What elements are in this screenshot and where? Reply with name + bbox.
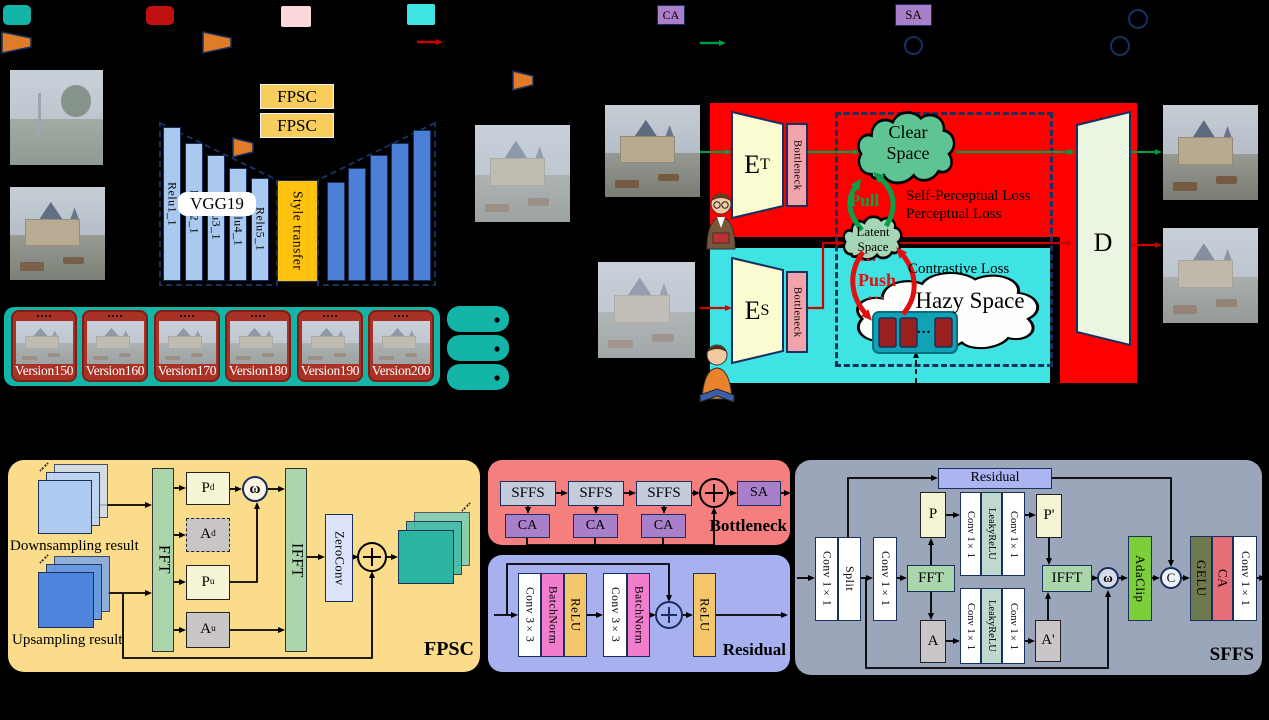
photo-haze-overlay [159,321,216,364]
relu-label: ReLU [569,598,583,632]
self-perceptual-loss-line: Self-Perceptual Loss [906,187,1051,205]
legend-red-swatch [146,6,174,25]
teacher-encoder-label: ET [737,148,777,182]
split-label: Split [843,566,856,591]
batchnorm-label: BatchNorm [546,586,558,644]
legend-sa-label: SA [905,8,922,22]
dots-mark [37,315,51,317]
hazy-space-text: Hazy Space [915,288,1024,314]
conv1x1-label: Conv 1×1 [965,511,976,558]
decoder-bar [370,155,388,281]
legend-teal-swatch [3,5,31,25]
batchnorm-box: BatchNorm [627,573,650,657]
et-sub: T [760,156,770,174]
pd-box: Pd [186,472,230,505]
legend-cyan-swatch [407,4,435,25]
style-transfer-box: Style transfer [277,180,318,282]
sffs-label: SFFS [647,486,680,502]
gelu-box: GELU [1190,536,1212,621]
legend-trapezoid-icon [2,32,31,53]
fpsc-box-bottom: FPSC [260,113,334,138]
zeroconv-box: ZeroConv [325,514,353,602]
et-main: E [744,150,760,180]
vgg19-pill: VGG19 [178,192,256,216]
photo-haze-overlay [16,321,73,364]
p-prime-label: P' [1043,508,1054,524]
concat-node: C [1160,567,1182,589]
photo-haze-overlay [230,321,287,364]
decoder-label: D [1082,226,1124,260]
sffs-ca-box: CA [1212,536,1233,621]
bottleneck-title-text: Bottleneck [710,516,787,535]
hazy-feature-cell [900,318,917,347]
a-prime-box: A' [1035,620,1061,662]
legend-circle-icon [1110,36,1130,56]
pu-main: P [202,575,210,591]
perceptual-loss-line: Perceptual Loss [906,205,1051,223]
omega-icon: ω [1103,570,1113,586]
ad-box: Ad [186,518,230,552]
version-thumb [16,321,73,364]
p-label: P [929,507,937,523]
output-feature-map [398,530,454,584]
zeroconv-label: ZeroConv [332,531,345,586]
database-icon [447,306,509,390]
dots-text: ... [917,321,931,337]
student-bottleneck-box: Bottleneck [786,271,808,353]
decoder-bar [413,130,431,281]
downsampling-label: Downsampling result [10,538,160,555]
conv3x3-box: Conv 3×3 [518,573,541,657]
pu-box: Pu [186,565,230,600]
gelu-label: GELU [1194,560,1208,597]
photo-haze-overlay [373,321,430,364]
concat-icon: C [1167,570,1176,586]
legend-circle-icon [1128,9,1148,29]
fpsc-box-top-label: FPSC [277,88,317,106]
version-card: Version160 [82,310,148,382]
conv3x3-label: Conv 3×3 [523,587,535,642]
adaclip-box: AdaClip [1128,536,1152,621]
sffs-box: SFFS [500,481,556,506]
version-label: Version150 [13,363,75,379]
conv1x1-label: Conv 1×1 [879,551,891,606]
relu-box: ReLU [564,573,587,657]
p-branch-leakyrelu: LeakyReLU [981,492,1002,576]
fpsc-box-bottom-label: FPSC [277,117,317,135]
sffs-box: SFFS [636,481,692,506]
contrastive-loss-line: Contrastive Loss [908,261,1009,277]
sffs-conv-out-box: Conv 1×1 [1233,536,1257,621]
sffs-box: SFFS [568,481,624,506]
upsampling-label: Upsampling result [12,632,162,649]
sffs-label: SFFS [511,486,544,502]
omega-node: ω [1097,567,1119,589]
version-label: Version160 [84,363,146,379]
sffs-title: SFFS [1192,644,1254,666]
dots-mark [108,315,122,317]
sffs-conv-mid-box: Conv 1×1 [873,537,897,621]
conv1x1-label: Conv 1×1 [965,603,976,650]
clear-space-label: Clear Space [864,120,952,166]
ca-box: CA [641,514,686,538]
relu-label: ReLU [698,598,712,632]
version-card: Version200 [368,310,434,382]
version-label: Version180 [227,363,289,379]
d-label: D [1094,228,1113,258]
leakyrelu-label: LeakyReLU [986,508,997,560]
sffs-label: SFFS [579,486,612,502]
version-thumb [373,321,430,364]
downsampling-text: Downsampling result [10,538,139,554]
a-box: A [920,620,946,663]
small-trapezoid-icon [513,71,533,90]
legend-ca-box: CA [657,5,685,25]
push-dots: ... [860,248,896,266]
legend-ca-label: CA [663,9,680,22]
conv3x3-box: Conv 3×3 [603,573,627,657]
version-thumb [230,321,287,364]
clear-space-line1: Clear [887,122,930,143]
leakyrelu-label: LeakyReLU [986,600,997,652]
version-thumb [159,321,216,364]
residual-title-text: Residual [723,640,786,659]
ca-label: CA [586,519,605,534]
pd-main: P [202,481,210,497]
sffs-residual-box: Residual [938,468,1052,489]
bottleneck-title: Bottleneck [695,516,787,536]
clear-space-line2: Space [887,143,930,164]
add-icon [700,479,728,507]
conv3x3-label: Conv 3×3 [609,587,621,642]
sffs-fft-box: FFT [907,565,955,592]
ad-main: A [200,527,211,543]
teacher-character [707,194,735,249]
hazy-feature-cell [879,318,896,347]
batchnorm-label: BatchNorm [632,586,644,644]
adaclip-label: AdaClip [1133,555,1147,603]
style-transfer-label: Style transfer [290,191,304,270]
pu-sub: u [210,578,215,588]
upsampling-text: Upsampling result [12,632,122,648]
fpsc-title-text: FPSC [424,638,474,660]
fft-label: FFT [918,571,944,587]
version-card: Version150 [11,310,77,382]
vgg-relu-bar: Relu3_1 [207,155,225,281]
dots-mark [251,315,265,317]
a-branch-conv: Conv 1×1 [960,588,981,664]
sffs-split-box: Split [838,537,861,621]
sffs-conv-in-box: Conv 1×1 [815,537,838,621]
version-thumb [302,321,359,364]
ca-box: CA [505,514,550,538]
legend-pink-swatch [281,6,311,27]
residual-label: Residual [971,471,1020,486]
version-label: Version170 [156,363,218,379]
residual-title: Residual [698,640,786,660]
p-branch-conv: Conv 1×1 [960,492,981,576]
pull-label: Pull [850,191,896,211]
conv1x1-label: Conv 1×1 [1008,511,1019,558]
omega-icon: ω [250,481,261,498]
legend-sa-box: SA [895,4,932,26]
version-card: Version190 [297,310,363,382]
teacher-bottleneck-label: Bottleneck [791,140,802,191]
small-trapezoid-icon [233,138,253,157]
dots-mark [180,315,194,317]
ad-sub: d [211,530,216,540]
add-icon [358,543,386,571]
ca-label: CA [654,519,673,534]
decoder-bar [348,168,366,281]
fft-label: FFT [155,545,172,574]
omega-node: ω [242,476,268,502]
photo-haze-overlay [87,321,144,364]
dots-text: ... [868,286,886,303]
student-encoder-label: ES [737,294,777,328]
version-card: Version170 [154,310,220,382]
teacher-bottleneck-box: Bottleneck [786,123,808,207]
downsample-feature-map [38,480,92,534]
perceptual-loss-text: Self-Perceptual Loss Perceptual Loss [906,187,1051,223]
a-prime-label: A' [1041,633,1055,649]
version-label: Version190 [299,363,361,379]
student-bottleneck-label: Bottleneck [791,287,802,338]
a-branch-leakyrelu: LeakyReLU [981,588,1002,664]
architecture-figure: CA SA FPSC FPSC Relu1_1 Relu2_1 Relu3_1 … [0,0,1269,720]
au-sub: u [211,625,216,635]
add-icon [656,602,682,628]
version-thumb [87,321,144,364]
au-main: A [200,622,211,638]
fpsc-fft-bar: FFT [152,468,174,652]
fpsc-box-top: FPSC [260,84,334,109]
au-box: Au [186,612,230,648]
version-label: Version200 [370,363,432,379]
es-sub: S [760,302,769,320]
ifft-label: IFFT [288,543,305,578]
upsample-feature-map [38,572,94,628]
sffs-title-text: SFFS [1210,644,1254,665]
ifft-label: IFFT [1052,571,1083,587]
p-branch-conv: Conv 1×1 [1002,492,1025,576]
vgg19-label: VGG19 [190,194,244,214]
decoder-bar [391,143,409,281]
contrastive-loss-text: Contrastive Loss [908,261,1028,278]
dots-text: ... [860,248,878,265]
p-box: P [920,492,946,538]
legend-trapezoid-icon [203,32,231,53]
sa-label: SA [750,486,768,501]
hazy-feature-dots: ... [917,321,941,338]
p-prime-box: P' [1036,494,1062,538]
pd-sub: d [210,484,215,494]
vgg-relu-bar: Relu4_1 [229,168,247,281]
legend-circle-icon [904,36,923,55]
conv1x1-label: Conv 1×1 [1008,603,1019,650]
a-label: A [928,634,939,650]
sa-box: SA [737,481,781,506]
dots-mark [323,315,337,317]
conv1x1-label: Conv 1×1 [820,551,832,606]
decoder-bar [327,182,345,281]
hazy-space-label: Hazy Space [900,287,1040,315]
dots-mark [394,315,408,317]
pull-text: Pull [850,191,879,210]
photo-haze-overlay [302,321,359,364]
fpsc-title: FPSC [398,638,474,661]
batchnorm-box: BatchNorm [541,573,564,657]
ca-label: CA [1216,569,1230,588]
version-card: Version180 [225,310,291,382]
ca-box: CA [573,514,618,538]
conv1x1-label: Conv 1×1 [1239,551,1251,606]
relu-label: Relu1_1 [166,182,179,226]
student-character [700,345,734,402]
fpsc-ifft-bar: IFFT [285,468,307,652]
relu-label: Relu5_1 [254,207,267,251]
sffs-ifft-box: IFFT [1042,565,1092,592]
es-main: E [745,296,761,326]
latent-space-line1: Latent [856,224,889,239]
a-branch-conv: Conv 1×1 [1002,588,1025,664]
vgg-relu-bar: Relu5_1 [251,178,269,281]
ca-label: CA [518,519,537,534]
push-dots: ... [868,286,904,304]
